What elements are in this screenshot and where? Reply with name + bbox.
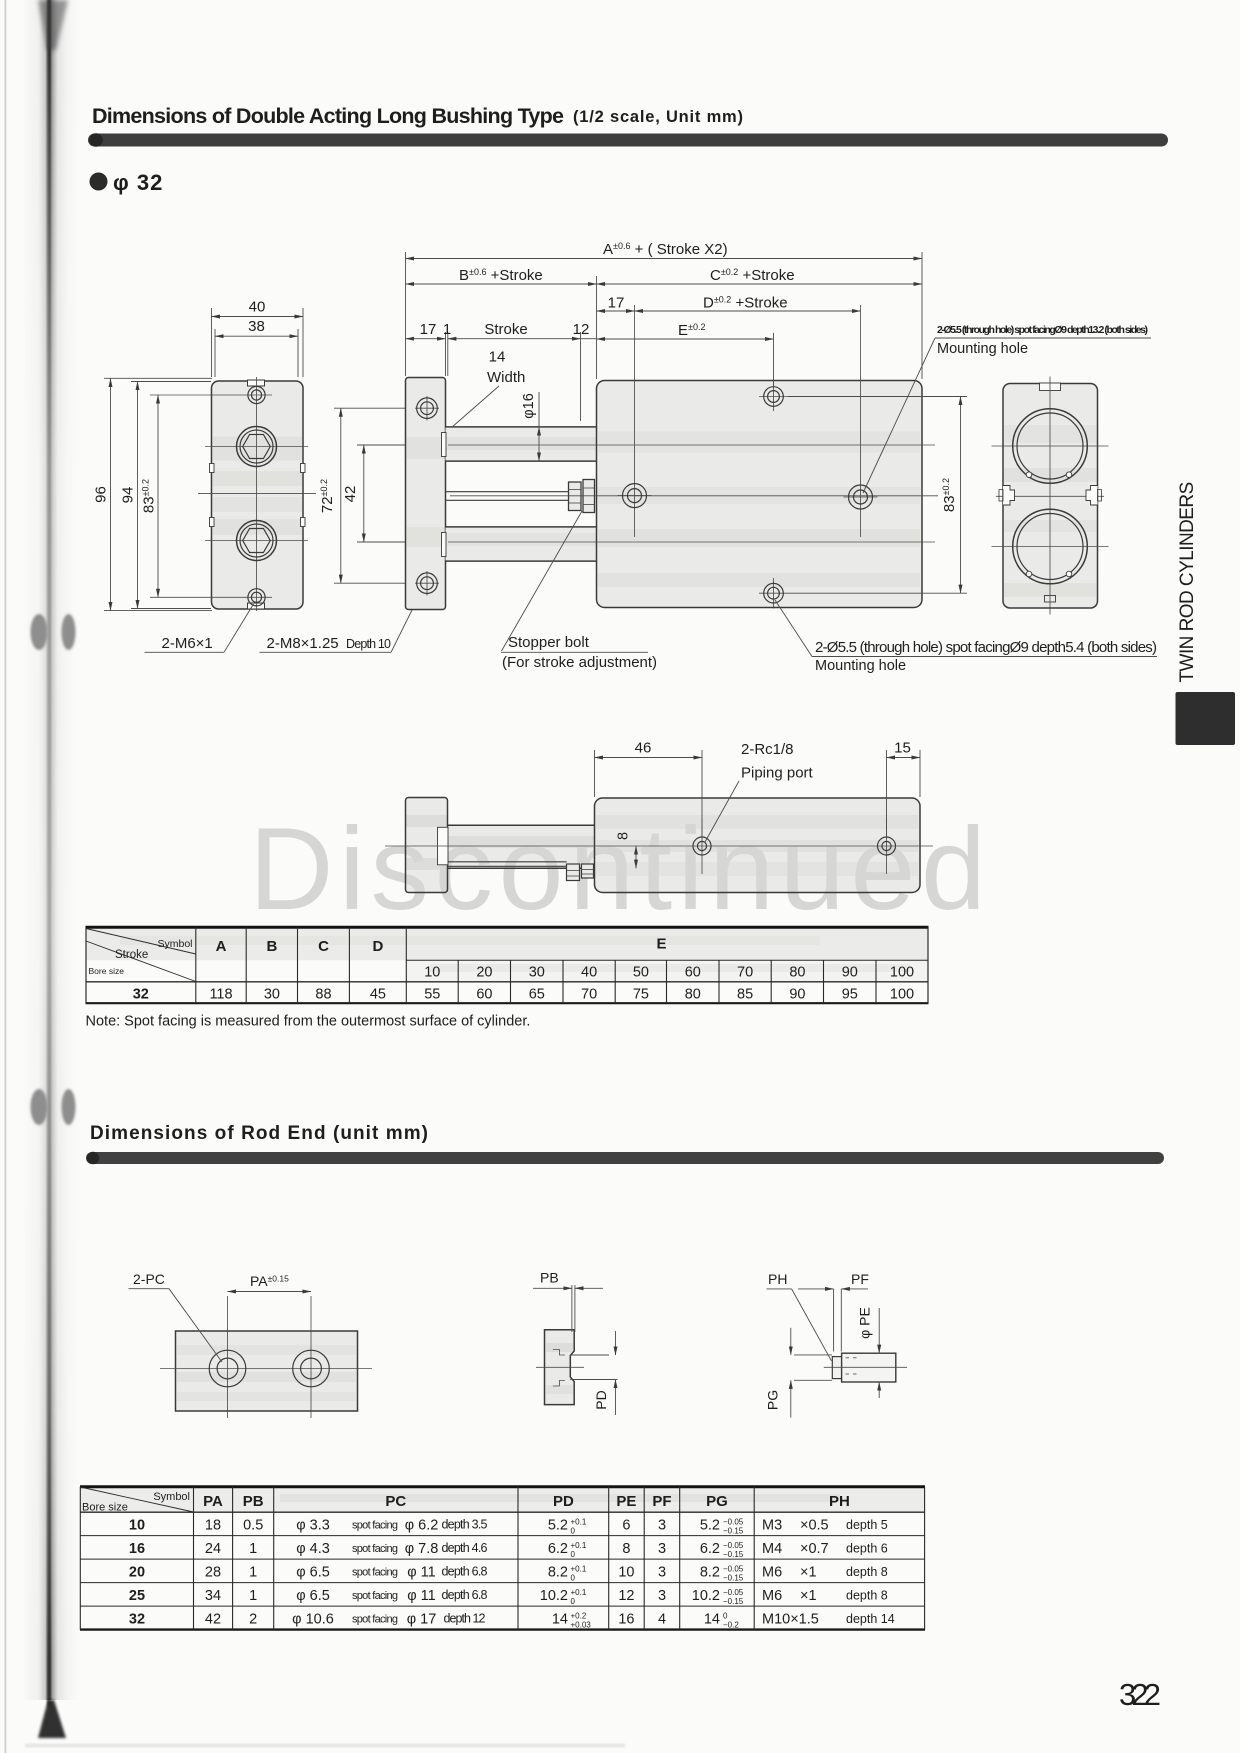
svg-text:A: A (216, 938, 227, 955)
svg-text:M6: M6 (762, 1588, 782, 1604)
svg-text:depth 8: depth 8 (846, 1589, 888, 1603)
svg-text:42: 42 (342, 486, 359, 503)
svg-text:Discontinued: Discontinued (249, 803, 986, 934)
svg-text:+0.1: +0.1 (571, 1541, 587, 1550)
svg-text:M6: M6 (762, 1565, 782, 1581)
svg-text:10: 10 (618, 1565, 634, 1581)
svg-text:2-Ø5.5 (through hole) spot fac: 2-Ø5.5 (through hole) spot facingØ9 dept… (815, 639, 1157, 656)
svg-text:24: 24 (205, 1541, 221, 1557)
svg-text:−0.15: −0.15 (723, 1597, 744, 1606)
svg-text:2-M6×1: 2-M6×1 (162, 635, 213, 652)
svg-text:PE: PE (616, 1493, 636, 1510)
svg-text:E: E (656, 936, 666, 953)
svg-text:×1: ×1 (800, 1565, 817, 1581)
svg-text:40: 40 (249, 299, 266, 316)
svg-text:14: 14 (704, 1612, 720, 1628)
svg-text:−0.15: −0.15 (723, 1550, 744, 1559)
svg-text:5.2: 5.2 (700, 1518, 720, 1534)
svg-text:PB: PB (243, 1493, 264, 1510)
svg-text:5.2: 5.2 (548, 1518, 568, 1534)
svg-text:60: 60 (685, 965, 701, 981)
svg-text:42: 42 (205, 1612, 221, 1628)
svg-text:90: 90 (842, 965, 858, 981)
svg-text:M10×1.5: M10×1.5 (762, 1612, 819, 1628)
svg-text:15: 15 (894, 740, 911, 757)
svg-text:14: 14 (489, 349, 506, 366)
svg-text:32: 32 (129, 1612, 145, 1628)
svg-text:PA±0.15: PA±0.15 (250, 1273, 289, 1289)
svg-text:72±0.2: 72±0.2 (319, 479, 336, 513)
svg-text:8.2: 8.2 (548, 1565, 568, 1581)
svg-text:2-M8×1.25: 2-M8×1.25 (267, 635, 339, 652)
svg-text:E±0.2: E±0.2 (678, 322, 705, 339)
svg-text:B: B (266, 938, 277, 955)
svg-text:6.2: 6.2 (548, 1541, 568, 1557)
svg-text:Stroke: Stroke (115, 949, 148, 961)
svg-text:10.2: 10.2 (692, 1588, 720, 1604)
svg-text:+0.2: +0.2 (571, 1612, 587, 1621)
svg-text:16: 16 (129, 1541, 145, 1557)
svg-text:17: 17 (420, 321, 437, 338)
svg-text:spot facing: spot facing (352, 1590, 398, 1602)
svg-text:0: 0 (723, 1612, 728, 1621)
svg-text:φ 7.8: φ 7.8 (405, 1541, 439, 1557)
svg-text:φ 4.3: φ 4.3 (296, 1541, 330, 1557)
svg-text:+0.1: +0.1 (571, 1518, 587, 1527)
svg-text:Symbol: Symbol (153, 1491, 190, 1503)
svg-text:10.2: 10.2 (540, 1588, 568, 1604)
svg-text:3: 3 (658, 1565, 666, 1581)
svg-text:16: 16 (618, 1612, 634, 1628)
svg-text:depth 6.8: depth 6.8 (442, 1588, 488, 1602)
svg-text:spot facing: spot facing (352, 1543, 398, 1555)
svg-text:12: 12 (573, 321, 590, 338)
svg-text:φ 11: φ 11 (407, 1565, 435, 1581)
svg-text:−0.05: −0.05 (723, 1518, 744, 1527)
svg-text:1: 1 (249, 1588, 257, 1604)
svg-text:46: 46 (635, 740, 652, 757)
svg-text:φ 11: φ 11 (407, 1588, 435, 1604)
svg-text:18: 18 (205, 1518, 221, 1534)
svg-text:PB: PB (540, 1270, 559, 1286)
svg-text:depth 8: depth 8 (846, 1565, 888, 1579)
svg-text:0.5: 0.5 (243, 1518, 263, 1534)
svg-text:0: 0 (571, 1597, 576, 1606)
svg-text:φ 6.5: φ 6.5 (296, 1565, 330, 1581)
svg-text:PG: PG (706, 1493, 728, 1510)
svg-text:38: 38 (248, 318, 265, 335)
svg-text:φ 6.2: φ 6.2 (405, 1518, 439, 1534)
svg-text:70: 70 (737, 965, 753, 981)
svg-text:Bore size: Bore size (89, 966, 125, 976)
svg-text:94: 94 (120, 487, 137, 504)
svg-text:6: 6 (622, 1518, 630, 1534)
svg-text:85: 85 (737, 986, 753, 1002)
svg-text:50: 50 (633, 965, 649, 981)
svg-text:Mounting hole: Mounting hole (937, 341, 1028, 357)
svg-text:0: 0 (571, 1550, 576, 1559)
svg-text:PD: PD (593, 1390, 609, 1409)
svg-text:PF: PF (652, 1493, 671, 1510)
svg-text:60: 60 (476, 986, 492, 1002)
svg-text:Stopper bolt: Stopper bolt (508, 634, 590, 651)
svg-text:×1: ×1 (800, 1588, 817, 1604)
svg-text:depth 5: depth 5 (846, 1518, 888, 1532)
svg-text:3: 3 (658, 1518, 666, 1534)
svg-text:+0.1: +0.1 (571, 1565, 587, 1574)
svg-text:83±0.2: 83±0.2 (141, 479, 158, 513)
svg-text:−0.15: −0.15 (723, 1574, 744, 1583)
svg-text:Width: Width (487, 369, 525, 386)
svg-text:45: 45 (370, 986, 386, 1002)
svg-text:C: C (318, 938, 329, 955)
svg-text:B±0.6 +Stroke: B±0.6 +Stroke (459, 267, 543, 284)
svg-text:φ PE: φ PE (857, 1307, 873, 1339)
svg-text:×0.5: ×0.5 (800, 1518, 829, 1534)
svg-text:φ 17: φ 17 (407, 1612, 437, 1628)
svg-text:90: 90 (789, 986, 805, 1002)
svg-text:depth 6: depth 6 (846, 1542, 888, 1556)
svg-text:75: 75 (633, 986, 649, 1002)
svg-text:30: 30 (529, 965, 545, 981)
svg-text:D±0.2 +Stroke: D±0.2 +Stroke (703, 295, 788, 312)
svg-text:28: 28 (205, 1565, 221, 1581)
svg-text:φ 10.6: φ 10.6 (292, 1612, 334, 1628)
svg-text:φ 3.3: φ 3.3 (296, 1518, 330, 1534)
svg-text:depth 12: depth 12 (444, 1612, 486, 1626)
svg-text:D: D (372, 938, 383, 955)
svg-text:(1/2 scale, Unit mm): (1/2 scale, Unit mm) (573, 108, 743, 126)
svg-text:Stroke: Stroke (484, 321, 527, 338)
svg-text:1: 1 (249, 1565, 257, 1581)
svg-text:10: 10 (129, 1518, 145, 1534)
svg-text:1: 1 (249, 1541, 257, 1557)
svg-text:depth 3.5: depth 3.5 (442, 1518, 488, 1532)
svg-text:−0.05: −0.05 (723, 1541, 744, 1550)
svg-text:40: 40 (581, 965, 597, 981)
svg-text:spot facing: spot facing (352, 1614, 398, 1626)
svg-text:φ 6.5: φ 6.5 (296, 1588, 330, 1604)
svg-text:depth 6.8: depth 6.8 (442, 1565, 488, 1579)
svg-text:8.2: 8.2 (700, 1565, 720, 1581)
svg-text:M3: M3 (762, 1518, 782, 1534)
svg-text:PG: PG (765, 1390, 781, 1410)
svg-text:2-Rc1/8: 2-Rc1/8 (741, 741, 794, 758)
svg-text:80: 80 (789, 965, 805, 981)
svg-text:Bore size: Bore size (82, 1502, 128, 1514)
svg-text:34: 34 (205, 1588, 221, 1604)
svg-text:φ 32: φ 32 (113, 170, 163, 195)
svg-text:φ16: φ16 (521, 393, 537, 419)
svg-text:−0.05: −0.05 (723, 1588, 744, 1597)
svg-text:70: 70 (581, 986, 597, 1002)
svg-text:100: 100 (890, 965, 914, 981)
svg-text:32: 32 (133, 986, 149, 1002)
svg-text:6.2: 6.2 (700, 1541, 720, 1557)
svg-text:0: 0 (571, 1527, 576, 1536)
svg-text:2-PC: 2-PC (133, 1271, 165, 1287)
svg-text:8: 8 (616, 832, 632, 840)
svg-text:2: 2 (249, 1612, 257, 1628)
svg-text:14: 14 (552, 1612, 568, 1628)
svg-text:depth 14: depth 14 (846, 1612, 895, 1626)
svg-text:95: 95 (842, 986, 858, 1002)
svg-text:8: 8 (622, 1541, 630, 1557)
svg-text:4: 4 (658, 1612, 666, 1628)
svg-text:55: 55 (424, 986, 440, 1002)
svg-text:PH: PH (768, 1271, 787, 1287)
svg-text:+0.1: +0.1 (571, 1588, 587, 1597)
svg-text:PH: PH (829, 1493, 850, 1510)
svg-text:12: 12 (618, 1588, 634, 1604)
svg-text:83±0.2: 83±0.2 (941, 478, 958, 512)
svg-text:100: 100 (890, 986, 914, 1002)
svg-text:20: 20 (476, 965, 492, 981)
svg-text:C±0.2 +Stroke: C±0.2 +Stroke (710, 267, 795, 284)
svg-text:0: 0 (571, 1574, 576, 1583)
svg-text:80: 80 (685, 986, 701, 1002)
svg-text:88: 88 (315, 986, 331, 1002)
svg-text:PC: PC (385, 1493, 406, 1510)
svg-text:1: 1 (443, 321, 451, 338)
svg-text:−0.05: −0.05 (723, 1565, 744, 1574)
svg-text:3: 3 (658, 1588, 666, 1604)
svg-text:30: 30 (264, 986, 280, 1002)
svg-text:Dimensions of Double Acting Lo: Dimensions of Double Acting Long Bushing… (92, 104, 564, 128)
svg-text:Note: Spot facing is measure: Note: Spot facing is measured from the o… (86, 1013, 531, 1029)
svg-text:M4: M4 (762, 1541, 782, 1557)
svg-text:322: 322 (1119, 1677, 1161, 1712)
svg-text:17: 17 (608, 295, 625, 312)
svg-text:+0.03: +0.03 (571, 1621, 592, 1630)
svg-text:Dimensions of Rod End (unit mm: Dimensions of Rod End (unit mm) (90, 1123, 428, 1144)
svg-text:Piping port: Piping port (741, 765, 814, 782)
svg-text:Symbol: Symbol (157, 938, 192, 950)
svg-text:10: 10 (424, 965, 440, 981)
svg-text:96: 96 (93, 486, 110, 503)
svg-text:−0.15: −0.15 (723, 1527, 744, 1536)
svg-text:PA: PA (203, 1493, 223, 1510)
svg-text:(For stroke adjustment): (For stroke adjustment) (502, 654, 657, 671)
svg-text:25: 25 (129, 1588, 145, 1604)
svg-text:3: 3 (658, 1541, 666, 1557)
svg-text:A±0.6 + ( Stroke X2): A±0.6 + ( Stroke X2) (603, 241, 728, 258)
svg-text:Depth 10: Depth 10 (346, 637, 391, 651)
svg-text:TWIN ROD CYLINDERS: TWIN ROD CYLINDERS (1177, 482, 1198, 683)
svg-text:118: 118 (209, 986, 232, 1002)
svg-text:×0.7: ×0.7 (800, 1541, 829, 1557)
svg-text:2-Ø5.5 (through hole) spot fac: 2-Ø5.5 (through hole) spot facingØ9 dept… (937, 324, 1148, 336)
svg-text:20: 20 (129, 1565, 145, 1581)
svg-text:PF: PF (851, 1271, 869, 1287)
svg-text:spot facing: spot facing (352, 1567, 398, 1579)
svg-text:PD: PD (553, 1493, 574, 1510)
svg-text:depth 4.6: depth 4.6 (442, 1541, 488, 1555)
svg-text:Mounting hole: Mounting hole (815, 658, 906, 674)
svg-text:65: 65 (529, 986, 545, 1002)
svg-text:spot facing: spot facing (352, 1520, 398, 1532)
svg-text:−0.2: −0.2 (723, 1621, 739, 1630)
